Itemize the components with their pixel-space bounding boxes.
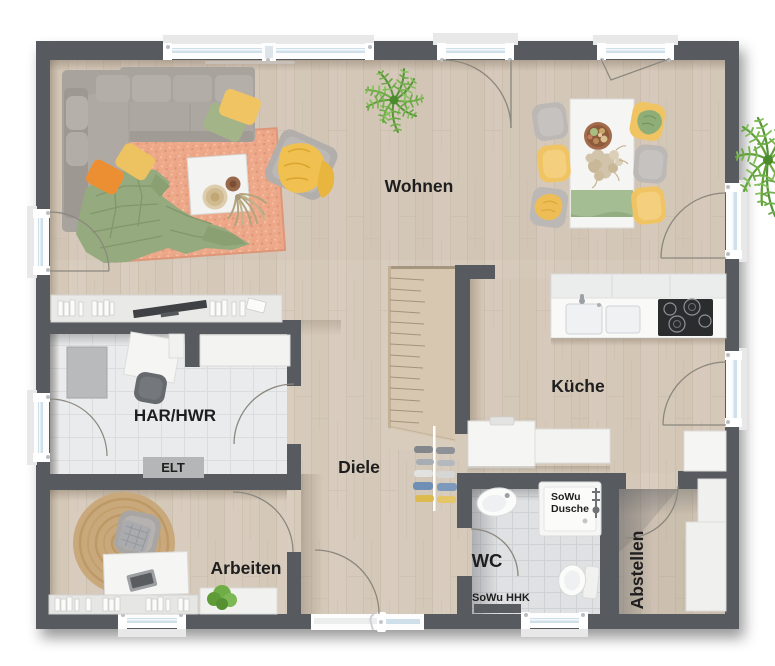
svg-text:Diele: Diele — [338, 457, 380, 477]
svg-text:ELT: ELT — [161, 460, 185, 475]
svg-text:SoWu: SoWu — [551, 491, 581, 503]
svg-text:HAR/HWR: HAR/HWR — [134, 406, 216, 425]
svg-text:SoWu HHK: SoWu HHK — [472, 592, 530, 604]
svg-text:Wohnen: Wohnen — [385, 176, 454, 196]
svg-text:Küche: Küche — [551, 376, 605, 396]
svg-text:WC: WC — [472, 550, 503, 571]
svg-text:Arbeiten: Arbeiten — [211, 558, 282, 578]
svg-text:Abstellen: Abstellen — [627, 531, 647, 610]
svg-text:Dusche: Dusche — [551, 503, 589, 515]
